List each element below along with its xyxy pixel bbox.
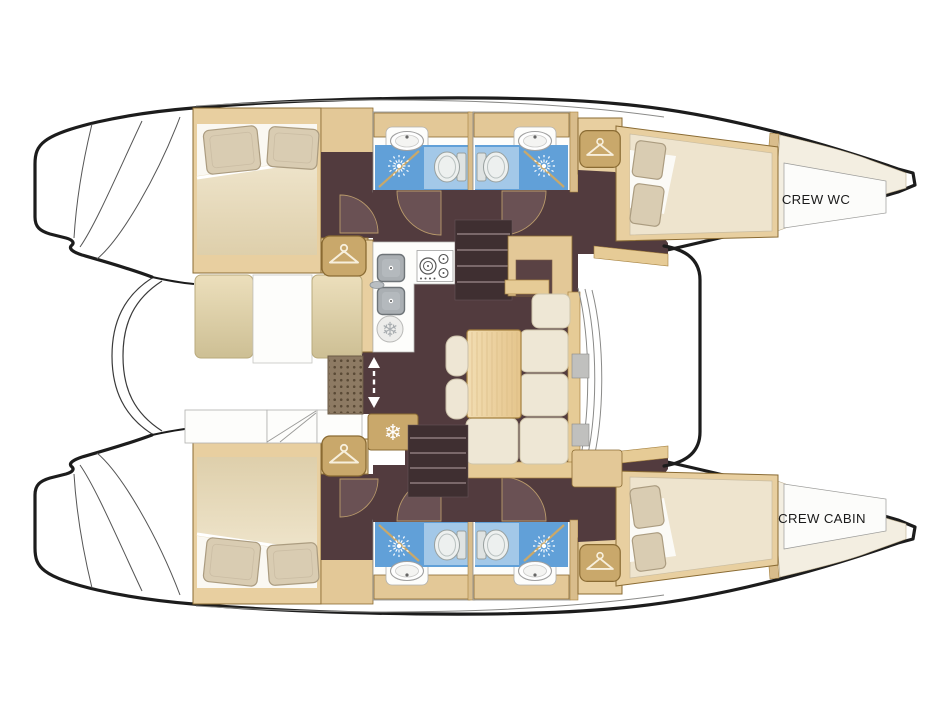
pillow <box>629 183 664 227</box>
aft-crossbeam-curve <box>112 278 162 356</box>
stove-icon <box>417 251 453 282</box>
deck-grating <box>328 356 363 414</box>
pillow <box>203 125 261 174</box>
sofa-cushion <box>466 418 518 464</box>
sofa-cushion <box>520 374 568 416</box>
companionway-stairs-starboard <box>408 425 468 497</box>
cockpit-bench-cushion <box>312 275 362 358</box>
pillow <box>267 126 320 169</box>
crew-wc-label: CREW WC <box>782 192 851 207</box>
companionway-stairs-port <box>455 220 512 300</box>
sofa-wood-trim <box>505 280 549 294</box>
snowflake-icon: ❄ <box>382 318 399 342</box>
sofa-cushion <box>520 418 568 464</box>
dining-table <box>467 330 521 418</box>
cockpit-bench-cushion <box>195 275 253 358</box>
head-compartment-aft <box>373 112 470 192</box>
snowflake-icon: ❄ <box>384 421 402 446</box>
pillow <box>632 140 667 180</box>
sink-icon <box>519 132 552 151</box>
hanger-icon <box>322 436 366 476</box>
sofa-cushion <box>520 330 568 372</box>
hanger-icon <box>580 131 620 168</box>
dining-stool <box>446 336 468 376</box>
window-bracket <box>572 424 589 446</box>
wardrobe <box>321 108 373 154</box>
toilet-icon <box>477 152 509 182</box>
catamaran-floor-plan: ❄ <box>0 0 950 712</box>
forward-crossbeam <box>664 246 700 466</box>
galley-sink-icon <box>378 255 405 282</box>
galley-sink-icon <box>378 288 405 315</box>
window-bracket <box>572 354 589 378</box>
faucet <box>370 282 384 289</box>
cockpit-table-panel <box>253 275 312 363</box>
crew-cabin-label: CREW CABIN <box>778 511 866 526</box>
sofa-cushion <box>532 294 570 328</box>
refrigerator: ❄ <box>377 316 403 342</box>
cabin-wall <box>570 112 578 192</box>
cockpit <box>185 275 363 443</box>
entry-threshold <box>362 352 413 414</box>
hanger-icon <box>322 236 366 276</box>
sink-icon <box>391 132 424 151</box>
dining-stool <box>446 379 468 419</box>
toilet-icon <box>435 152 467 182</box>
transom-step-curves <box>74 117 180 259</box>
head-compartment-forward <box>473 112 570 192</box>
floor-plan-svg: ❄ <box>0 0 950 712</box>
step-cell <box>185 410 267 443</box>
crew-desk <box>572 450 622 487</box>
hanger-icon <box>580 545 620 582</box>
